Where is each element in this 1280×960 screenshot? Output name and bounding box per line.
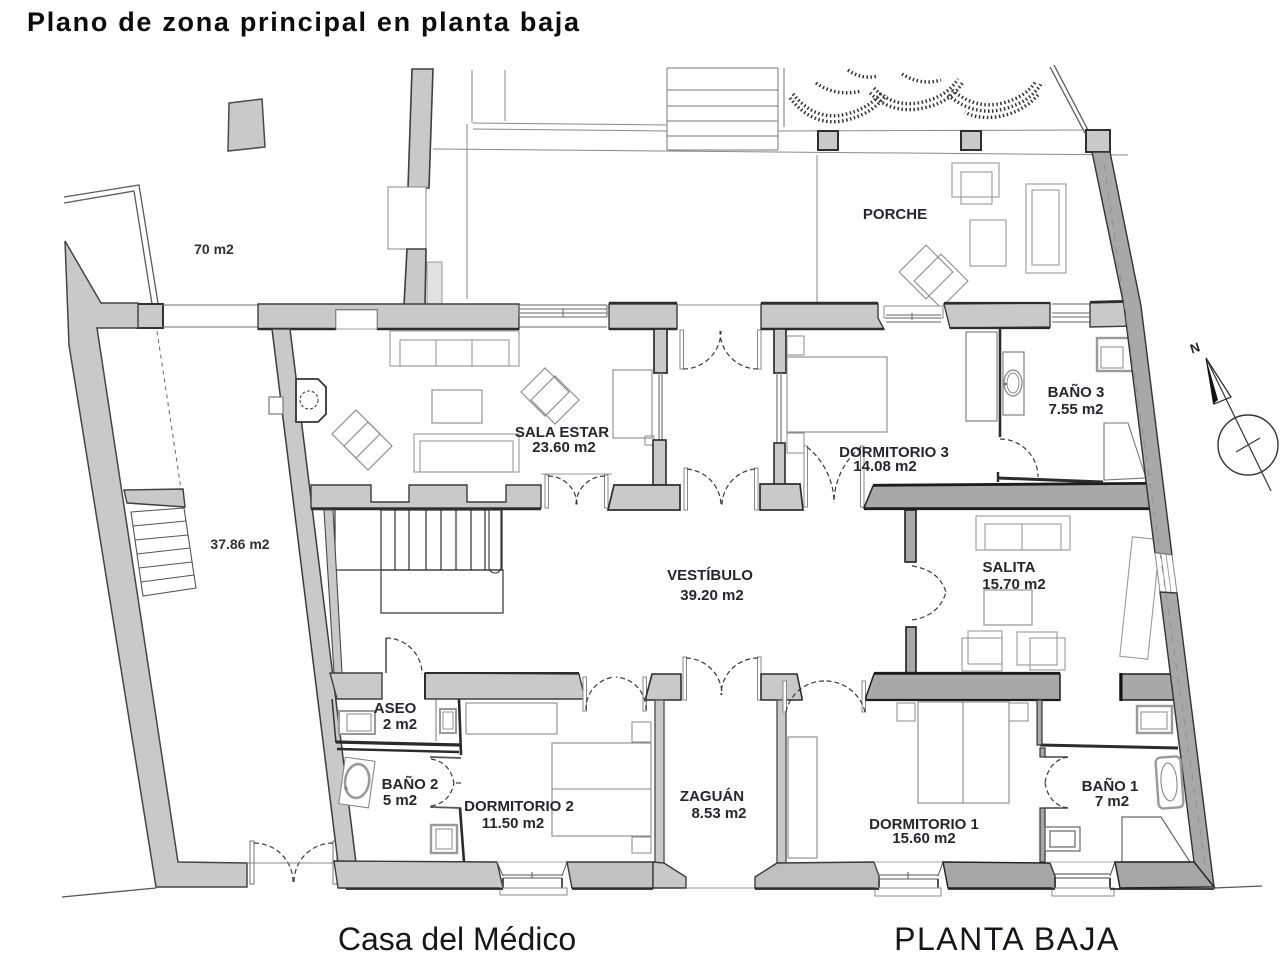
svg-text:11.50 m2: 11.50 m2 bbox=[482, 815, 545, 832]
svg-text:70 m2: 70 m2 bbox=[194, 241, 234, 257]
svg-text:15.60 m2: 15.60 m2 bbox=[892, 830, 955, 847]
svg-text:Plano de zona principal en pla: Plano de zona principal en planta baja bbox=[27, 7, 581, 37]
svg-text:SALITA: SALITA bbox=[982, 559, 1035, 576]
svg-text:15.70 m2: 15.70 m2 bbox=[982, 576, 1045, 593]
svg-text:39.20 m2: 39.20 m2 bbox=[680, 587, 743, 604]
svg-text:14.08 m2: 14.08 m2 bbox=[853, 458, 916, 475]
svg-text:BAÑO 2: BAÑO 2 bbox=[382, 775, 439, 793]
svg-text:8.53 m2: 8.53 m2 bbox=[691, 805, 746, 822]
svg-text:7 m2: 7 m2 bbox=[1095, 793, 1129, 810]
svg-text:Casa del Médico: Casa del Médico bbox=[338, 921, 576, 957]
svg-text:37.86 m2: 37.86 m2 bbox=[210, 536, 269, 552]
svg-text:ZAGUÁN: ZAGUÁN bbox=[680, 788, 744, 805]
svg-text:PORCHE: PORCHE bbox=[863, 206, 927, 223]
svg-text:ASEO: ASEO bbox=[374, 700, 417, 717]
svg-text:23.60 m2: 23.60 m2 bbox=[532, 439, 595, 456]
svg-text:VESTÍBULO: VESTÍBULO bbox=[667, 567, 753, 584]
svg-text:7.55 m2: 7.55 m2 bbox=[1048, 401, 1103, 418]
svg-text:DORMITORIO 2: DORMITORIO 2 bbox=[464, 798, 574, 815]
svg-text:2 m2: 2 m2 bbox=[383, 716, 417, 733]
svg-text:5 m2: 5 m2 bbox=[383, 792, 417, 809]
svg-text:PLANTA BAJA: PLANTA BAJA bbox=[894, 921, 1120, 957]
svg-text:BAÑO 3: BAÑO 3 bbox=[1048, 383, 1105, 401]
